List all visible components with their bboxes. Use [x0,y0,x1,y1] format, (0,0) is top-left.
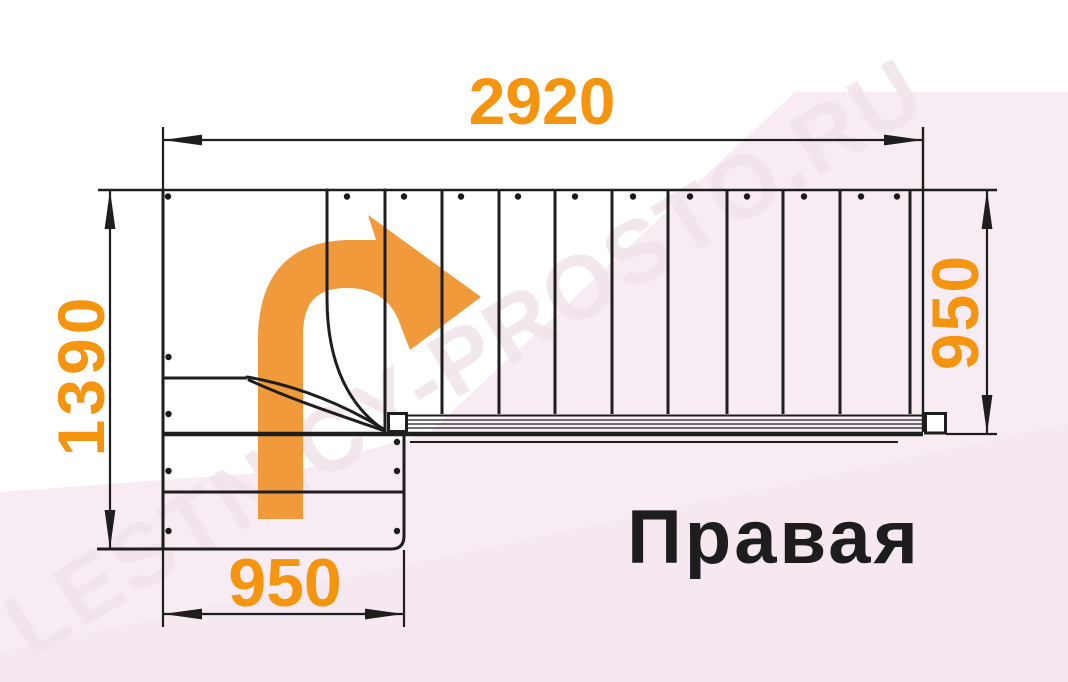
dim-left-label: 1390 [44,294,118,457]
stair-plan-page: LESTNICY-PROSTO.RU LESTNICY-PROSTO.RU [0,0,1068,682]
dim-top-label: 2920 [469,64,616,138]
dim-bottom-label: 950 [228,545,341,621]
newel-post-corner [389,414,407,432]
direction-label: Правая [627,495,921,580]
dim-right-label: 950 [918,254,992,370]
stair-plan-drawing: LESTNICY-PROSTO.RU LESTNICY-PROSTO.RU [0,0,1068,682]
newel-post-end [926,414,946,434]
